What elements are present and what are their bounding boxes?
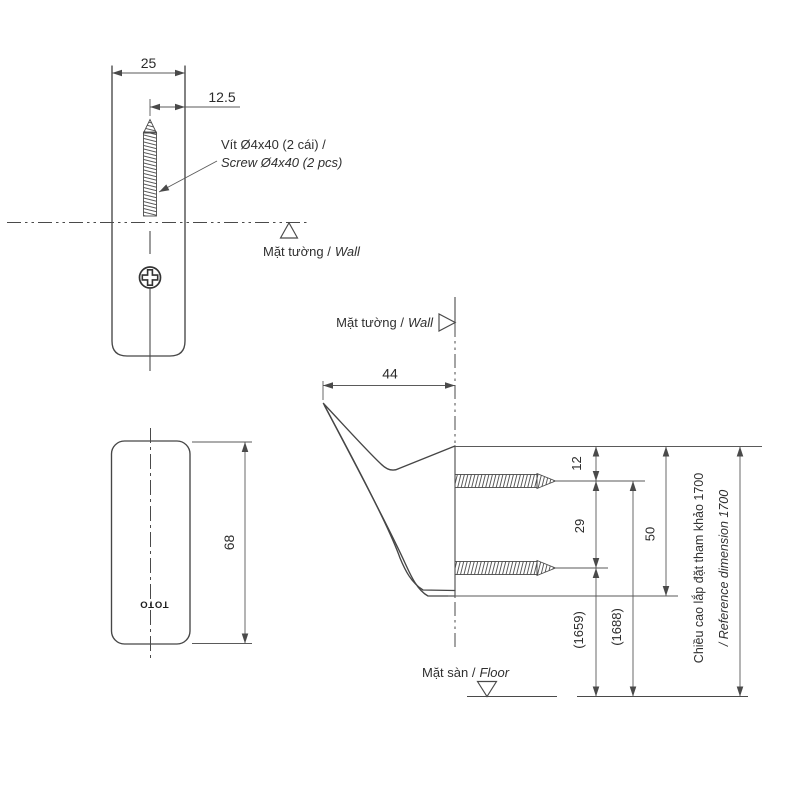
dimension-depth-44: 44 — [323, 366, 455, 401]
floor-datum: Mặt sàn /Floor — [422, 665, 748, 697]
toto-logo: TOTO — [139, 599, 168, 610]
dim-1688-value: (1688) — [609, 608, 624, 646]
dim-12-value: 12 — [569, 456, 584, 470]
screw-front-view — [144, 120, 157, 217]
dim-width-value: 25 — [141, 55, 157, 71]
dim-height-value: 68 — [221, 535, 237, 551]
dimension-50: 50 — [643, 447, 670, 597]
screw-lower-profile — [455, 561, 608, 576]
ref-height-vi: Chiều cao lắp đặt tham khảo 1700 — [691, 473, 706, 663]
dimension-offset-12-5: 12.5 — [150, 89, 240, 116]
front-view: 25 12.5 Vít Ø4x40 (2 cái) / Screw Ø4x40 … — [7, 55, 361, 371]
dim-50-value: 50 — [643, 527, 658, 541]
profile-view: Mặt tường /Wall 44 — [323, 297, 762, 697]
dim-1659-value: (1659) — [571, 611, 586, 649]
technical-drawing-canvas: 25 12.5 Vít Ø4x40 (2 cái) / Screw Ø4x40 … — [0, 0, 800, 800]
ref-height-en: / Reference dimension 1700 — [717, 490, 731, 647]
dimension-height-68: 68 — [192, 442, 252, 644]
dim-offset-value: 12.5 — [208, 89, 235, 105]
dimension-chain-12-29-1659: 12 29 (1659) — [569, 447, 599, 697]
wall-datum-triangle-icon — [281, 223, 298, 238]
hook-profile-outline — [324, 404, 456, 597]
dim-depth-value: 44 — [382, 366, 398, 382]
dimension-1688: (1688) — [609, 481, 636, 697]
dimension-reference-1700: Chiều cao lắp đặt tham khảo 1700 / Refer… — [691, 447, 743, 697]
phillips-screw-head — [140, 267, 161, 288]
dim-29-value: 29 — [572, 519, 587, 533]
screw-tip — [144, 120, 157, 134]
screw-note-vi: Vít Ø4x40 (2 cái) / — [221, 137, 326, 152]
floor-datum-triangle-icon — [478, 682, 497, 697]
wall-label-profile: Mặt tường /Wall — [336, 315, 434, 330]
screw-upper-profile — [455, 474, 645, 489]
wall-label-front: Mặt tường /Wall — [263, 244, 361, 259]
side-view: 68 TOTO — [112, 428, 253, 658]
wall-datum-triangle-right-icon — [439, 314, 455, 331]
screw-note-en: Screw Ø4x40 (2 pcs) — [221, 155, 342, 170]
dimension-width-25: 25 — [112, 55, 185, 76]
technical-drawing-page: 25 12.5 Vít Ø4x40 (2 cái) / Screw Ø4x40 … — [0, 0, 800, 800]
floor-label: Mặt sàn /Floor — [422, 665, 510, 680]
screw-thread — [144, 132, 157, 216]
